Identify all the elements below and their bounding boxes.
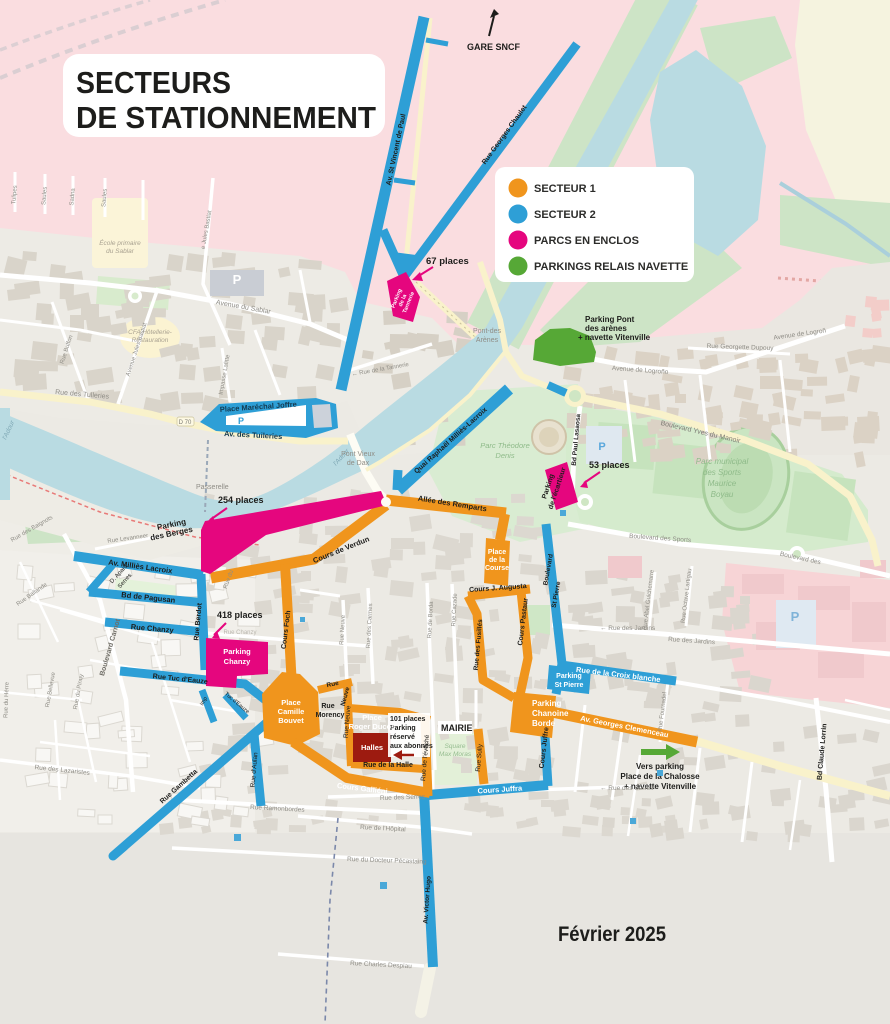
svg-text:Max Moras: Max Moras xyxy=(439,751,472,758)
svg-text:SECTEUR 1: SECTEUR 1 xyxy=(534,183,596,195)
svg-text:+ navette Vitenville: + navette Vitenville xyxy=(578,333,651,342)
svg-text:DE STATIONNEMENT: DE STATIONNEMENT xyxy=(76,100,376,135)
svg-text:Vers parking: Vers parking xyxy=(636,762,684,771)
svg-text:Square: Square xyxy=(445,743,466,750)
svg-text:CFA Hôtellerie-: CFA Hôtellerie- xyxy=(128,329,173,336)
svg-text:Parking: Parking xyxy=(532,699,561,708)
svg-text:Rue Chanzy: Rue Chanzy xyxy=(223,630,256,636)
svg-text:D 70: D 70 xyxy=(179,420,192,426)
svg-text:de la: de la xyxy=(489,557,505,564)
svg-text:Parking: Parking xyxy=(223,647,251,656)
svg-text:Borde: Borde xyxy=(532,719,556,728)
svg-text:Parc municipal: Parc municipal xyxy=(696,457,749,466)
svg-text:de Dax: de Dax xyxy=(347,460,370,467)
svg-text:← Rue des Serres: ← Rue des Serres xyxy=(600,785,654,792)
svg-text:Place: Place xyxy=(362,713,382,722)
svg-text:Rue: Rue xyxy=(321,703,334,710)
svg-text:P: P xyxy=(598,441,605,453)
svg-text:Parking Pont: Parking Pont xyxy=(585,315,635,324)
svg-text:Place: Place xyxy=(281,698,301,707)
svg-text:Parc Théodore: Parc Théodore xyxy=(480,441,530,450)
svg-text:P: P xyxy=(791,609,800,624)
svg-text:Pont-des: Pont-des xyxy=(473,328,502,335)
svg-text:GARE SNCF: GARE SNCF xyxy=(467,42,521,52)
svg-text:P: P xyxy=(238,416,244,426)
svg-text:254 places: 254 places xyxy=(218,495,264,505)
svg-text:PARKINGS RELAIS NAVETTE: PARKINGS RELAIS NAVETTE xyxy=(534,261,688,273)
svg-text:École primaire: École primaire xyxy=(99,238,141,247)
svg-text:Chanzy: Chanzy xyxy=(224,657,252,666)
svg-text:Morency: Morency xyxy=(316,712,345,719)
svg-text:MAIRIE: MAIRIE xyxy=(441,723,473,733)
svg-text:PARCS EN ENCLOS: PARCS EN ENCLOS xyxy=(534,235,639,247)
svg-text:Halles: Halles xyxy=(361,743,383,752)
svg-text:Bouvet: Bouvet xyxy=(278,716,304,725)
svg-text:Chanoine: Chanoine xyxy=(532,709,569,718)
svg-text:53 places: 53 places xyxy=(589,460,630,470)
svg-text:SECTEUR 2: SECTEUR 2 xyxy=(534,209,596,221)
svg-text:des arènes: des arènes xyxy=(585,324,627,333)
svg-text:Arènes: Arènes xyxy=(476,337,499,344)
svg-text:Denis: Denis xyxy=(495,451,514,460)
svg-text:St Pierre: St Pierre xyxy=(555,682,584,689)
svg-text:Rue de la Halle: Rue de la Halle xyxy=(363,762,413,769)
svg-text:Février 2025: Février 2025 xyxy=(558,923,666,946)
svg-text:Passerelle: Passerelle xyxy=(196,484,229,491)
svg-text:P: P xyxy=(233,272,242,287)
svg-text:des Sports: des Sports xyxy=(703,468,741,477)
svg-text:Place: Place xyxy=(488,549,506,556)
svg-text:du Sablar: du Sablar xyxy=(106,248,135,255)
svg-text:Roger Ducos: Roger Ducos xyxy=(349,722,396,731)
svg-text:Maurice: Maurice xyxy=(708,479,737,488)
svg-text:418 places: 418 places xyxy=(217,610,263,620)
svg-text:réservé: réservé xyxy=(390,734,415,741)
svg-text:Rue du Hèrre: Rue du Hèrre xyxy=(3,681,10,718)
svg-text:Camille: Camille xyxy=(278,707,305,716)
svg-text:Course: Course xyxy=(485,565,509,572)
svg-text:67 places: 67 places xyxy=(426,256,469,267)
svg-text:Boyau: Boyau xyxy=(711,490,734,499)
svg-text:Pont Vieux: Pont Vieux xyxy=(341,451,375,458)
svg-text:SECTEURS: SECTEURS xyxy=(76,65,231,100)
